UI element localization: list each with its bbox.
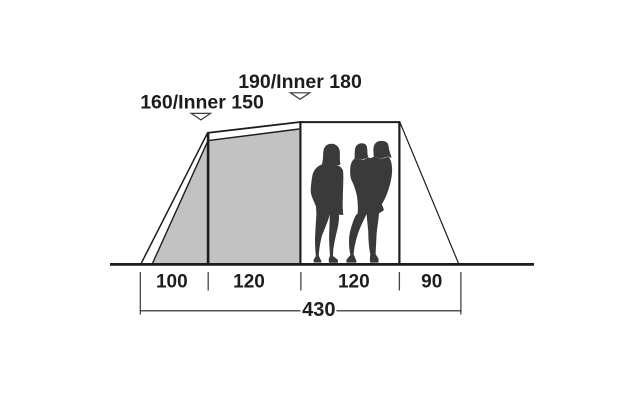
svg-text:90: 90 [421, 272, 442, 293]
svg-text:430: 430 [302, 299, 335, 321]
svg-text:120: 120 [338, 272, 370, 293]
svg-text:160/Inner 150: 160/Inner 150 [140, 92, 264, 114]
svg-text:190/Inner 180: 190/Inner 180 [238, 71, 362, 93]
svg-text:120: 120 [233, 272, 265, 293]
svg-text:100: 100 [156, 272, 188, 293]
